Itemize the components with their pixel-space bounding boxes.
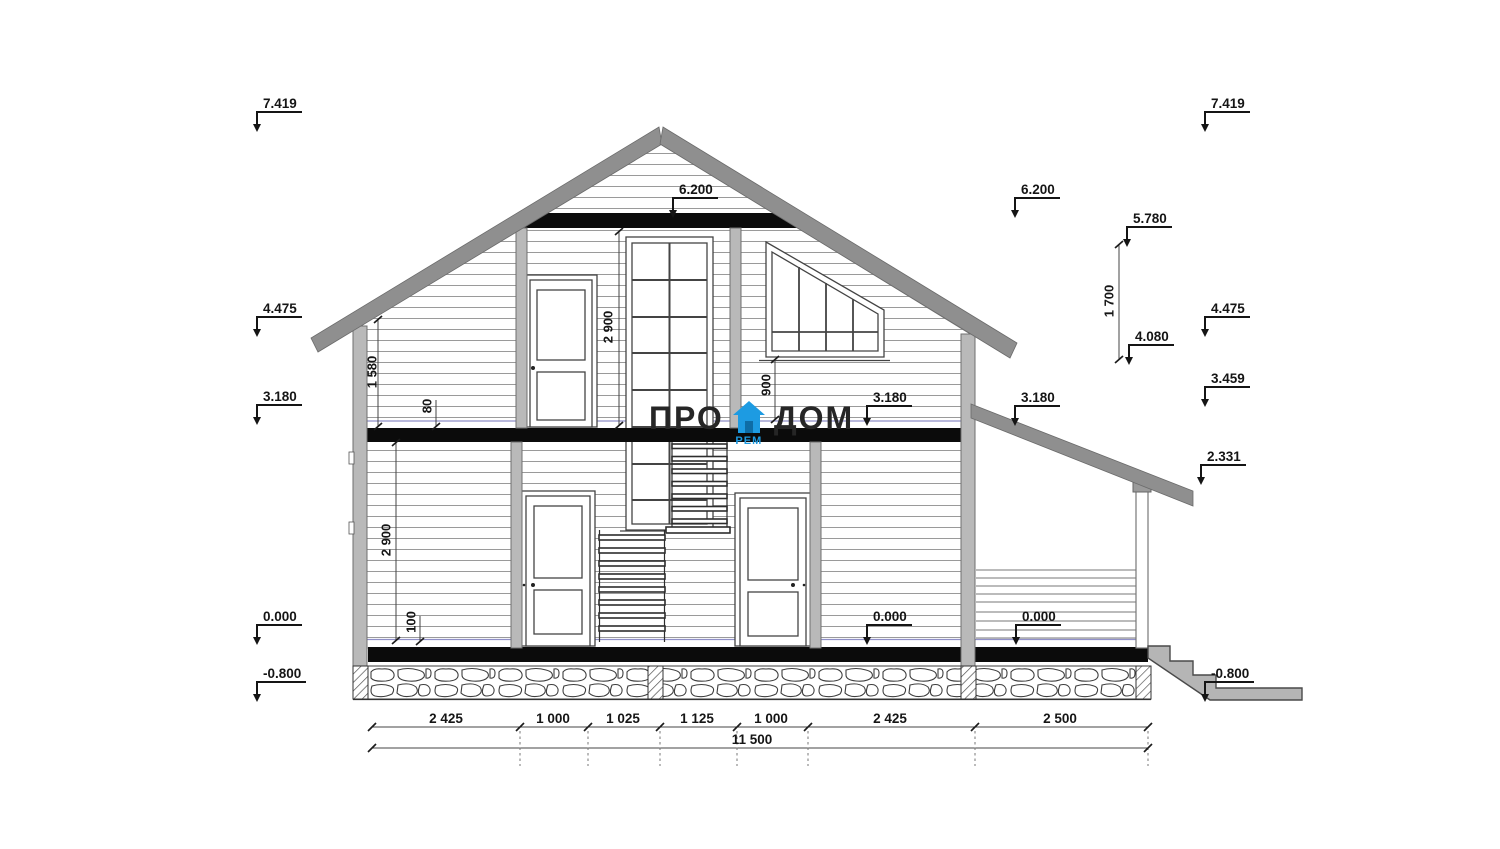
elevation-marker: 4.475 [256,301,302,318]
first-floor-left-door [521,491,595,646]
elevation-marker: 3.459 [1204,371,1250,388]
elevation-marker: 3.180 [256,389,302,406]
stairwell-window [620,237,719,531]
dim-finish-gap: 80 [420,399,435,413]
dim-total-width: 11 500 [732,732,773,747]
logo-subtext: РЕМ [735,436,762,447]
elevation-marker: 6.200 [1014,182,1060,199]
elevation-marker: -0.800 [256,666,306,683]
porch-railing [976,570,1136,638]
logo-text-pro: ПРО [649,402,724,434]
elevation-marker: 7.419 [1204,96,1250,113]
elevation-marker: 0.000 [256,609,302,626]
dim-sill-height: 900 [759,374,774,396]
porch-post [1133,476,1151,648]
elevation-marker: 6.200 [672,182,718,199]
elevation-marker: 3.180 [1014,390,1060,407]
elevation-marker: 7.419 [256,96,302,113]
house-icon-glyph [733,401,765,435]
elevation-marker: 4.475 [1204,301,1250,318]
logo-text-dom: ДОМ [774,402,854,434]
elevation-marker: 0.000 [1015,609,1061,626]
dim-chain-segment: 2 425 [873,711,907,726]
foundation [353,666,1151,700]
porch-roof-slope [971,404,1193,506]
elevation-marker: 3.180 [866,390,912,407]
dim-chain-segment: 1 025 [606,711,640,726]
second-floor-door [525,275,597,427]
section-drawing-canvas: 7.419 4.475 3.180 0.000 -0.800 7.419 4.4… [0,0,1500,849]
dim-chain-segment: 2 425 [429,711,463,726]
dim-chain-segment: 1 000 [536,711,570,726]
watermark-logo: ПРО РЕМ ДОМ [649,401,854,435]
dim-chain-segment: 1 125 [680,711,714,726]
dim-attic-knee-wall: 1 580 [365,356,380,389]
dim-chain-segment: 1 000 [754,711,788,726]
elevation-marker: 2.331 [1200,449,1246,466]
dim-floor2-height: 2 900 [601,311,616,344]
dim-floor-thickness: 100 [404,611,419,633]
elevation-marker: 0.000 [866,609,912,626]
elevation-marker: -0.800 [1204,666,1254,683]
dim-roof-rise: 1 700 [1102,285,1117,318]
dim-chain-segment: 2 500 [1043,711,1077,726]
elevation-marker: 4.080 [1128,329,1174,346]
house-logo-icon: РЕМ [733,401,765,435]
first-floor-right-door [735,493,811,646]
dim-floor1-height: 2 900 [379,524,394,557]
elevation-marker: 5.780 [1126,211,1172,228]
